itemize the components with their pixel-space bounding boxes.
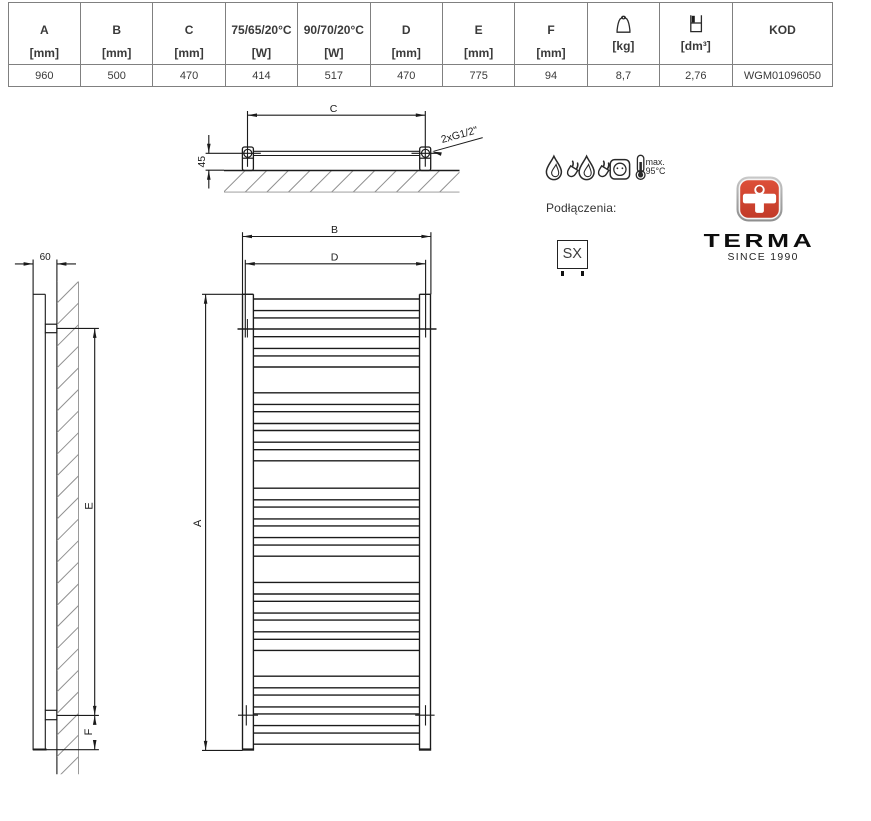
svg-text:45: 45	[196, 156, 208, 168]
svg-text:F: F	[83, 728, 95, 735]
svg-text:E: E	[84, 502, 96, 509]
svg-text:C: C	[330, 103, 338, 115]
svg-text:B: B	[331, 224, 338, 236]
svg-text:2xG1/2": 2xG1/2"	[440, 124, 480, 146]
svg-text:D: D	[331, 251, 339, 263]
svg-text:A: A	[192, 519, 204, 527]
svg-text:60: 60	[40, 252, 52, 263]
svg-text:95°C: 95°C	[646, 166, 666, 176]
